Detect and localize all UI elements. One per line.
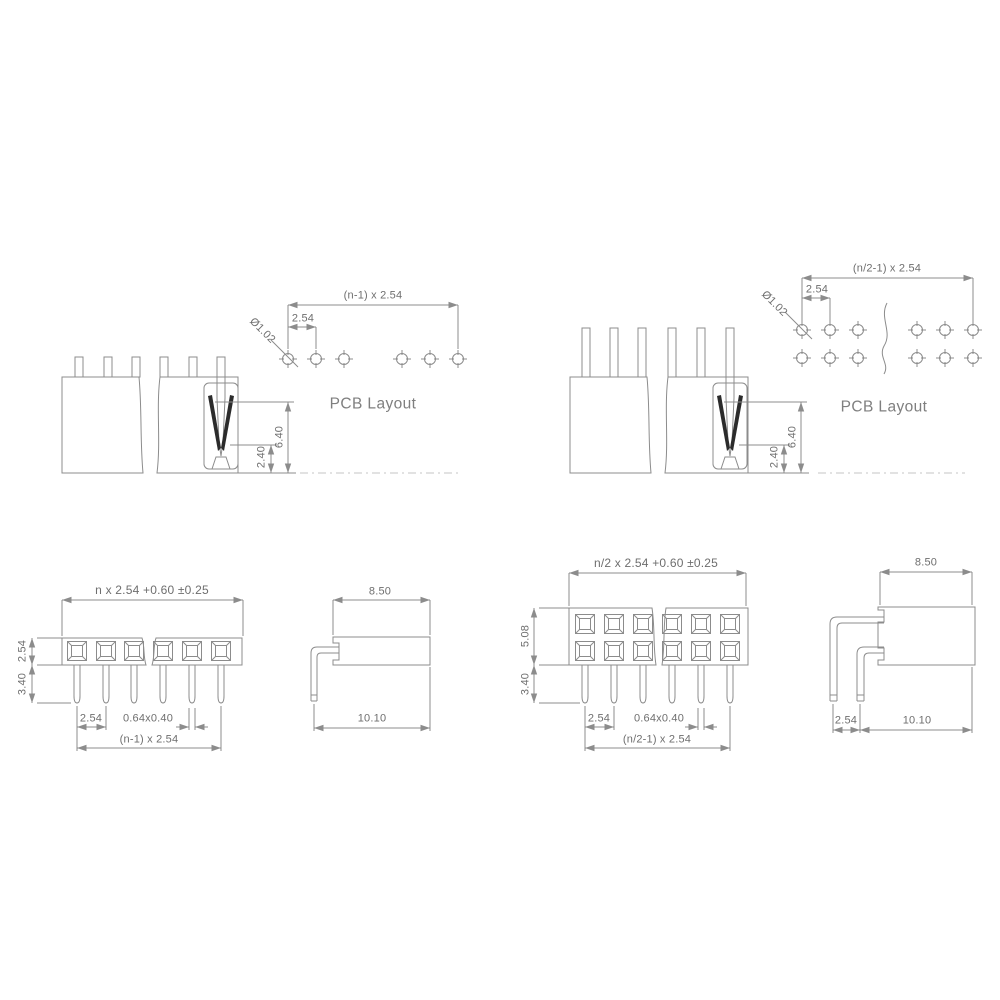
dim-body-height-label: 2.54: [18, 640, 29, 662]
socket-contact-section: [204, 377, 238, 469]
dim-span-label: (n-1) x 2.54: [344, 291, 403, 302]
dim-pin-length-label: 3.40: [521, 673, 532, 695]
dim-body-depth-label: 8.50: [915, 558, 937, 569]
right-angle-pin-bottom-row: [857, 647, 884, 701]
socket-contact-section: [713, 377, 747, 469]
dim-entry-depth-label: 2.40: [770, 446, 781, 468]
single-row-front-view: [32, 600, 243, 751]
dim-body-width-label: n/2 x 2.54 +0.60 ±0.25: [594, 557, 718, 569]
dim-pitch-label: 2.54: [806, 285, 828, 296]
pcb-layout-caption: PCB Layout: [330, 396, 417, 412]
right-angle-pin: [311, 647, 339, 701]
dim-entry-depth-label: 2.40: [257, 446, 268, 468]
dim-pin-section-label: 0.64x0.40: [634, 714, 684, 725]
dim-overall-depth-label: 10.10: [358, 714, 387, 725]
dim-socket-depth-label: 6.40: [275, 426, 286, 448]
dim-span-label: (n-1) x 2.54: [120, 735, 179, 746]
single-row-side-view: [311, 600, 430, 731]
dim-body-width-label: n x 2.54 +0.60 ±0.25: [95, 584, 209, 596]
dim-pitch-label: 2.54: [588, 714, 610, 725]
dim-socket-depth-label: 6.40: [788, 426, 799, 448]
pcb-layout-caption: PCB Layout: [841, 399, 928, 415]
dim-span-label: (n/2-1) x 2.54: [853, 264, 921, 275]
dim-pitch-label: 2.54: [80, 714, 102, 725]
technical-drawing-page: (n-1) x 2.54 2.54 Ø1.02 PCB Layout 6.40 …: [0, 0, 1000, 1000]
drawing-linework: [0, 0, 1000, 1000]
dim-row-pitch-label: 2.54: [835, 716, 857, 727]
break-line: [882, 303, 887, 374]
dim-pin-length-label: 3.40: [18, 673, 29, 695]
dim-body-height-label: 5.08: [521, 625, 532, 647]
dim-body-depth-label: 8.50: [369, 587, 391, 598]
dim-pin-section-label: 0.64x0.40: [123, 714, 173, 725]
dim-overall-depth-label: 10.10: [903, 716, 932, 727]
dual-row-side-view: [830, 572, 975, 733]
dim-span-label: (n/2-1) x 2.54: [623, 735, 691, 746]
dim-pitch-label: 2.54: [292, 314, 314, 325]
